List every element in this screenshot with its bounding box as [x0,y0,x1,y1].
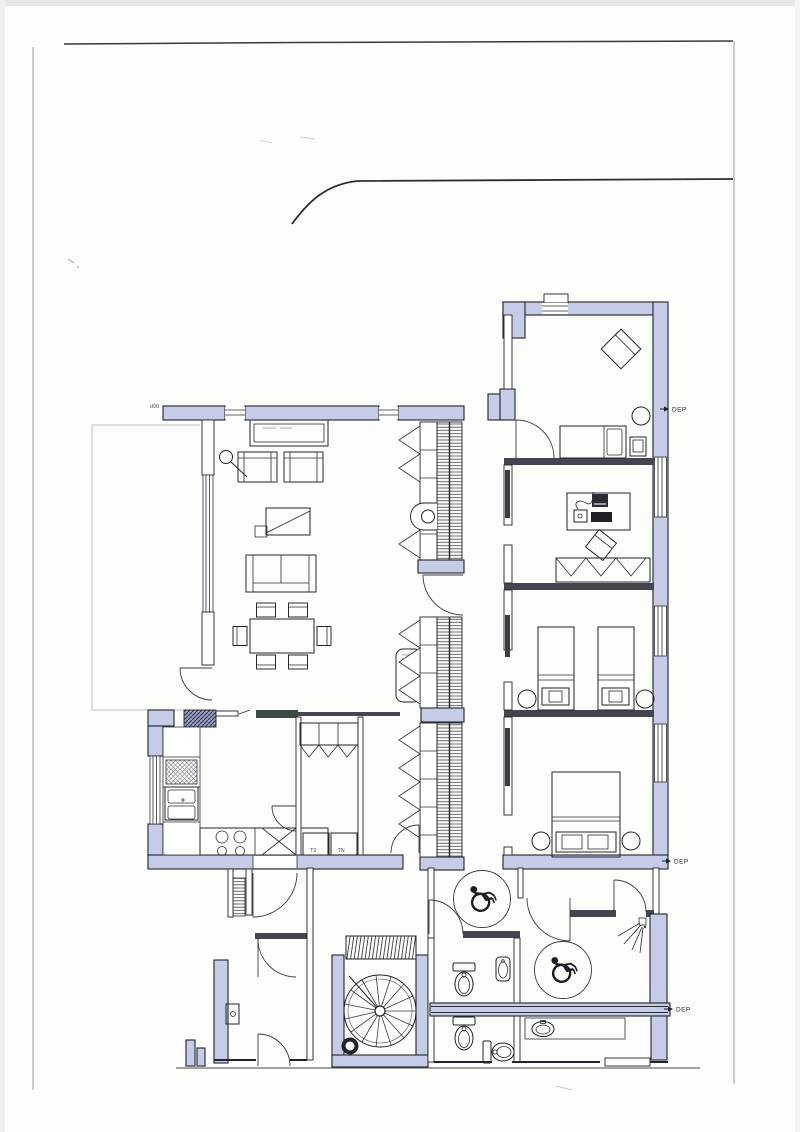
window-kitchen [150,756,160,824]
entry-step [544,294,568,303]
utility-unit-label-right: TN [338,848,345,854]
scan-artifacts [0,0,800,1132]
dep-label-top: DEP [672,407,687,414]
dep-label-bottom: DEP [676,1007,691,1014]
dep-label-middle: DEP [674,859,689,866]
window-east [655,457,667,782]
exterior-step [605,1058,650,1066]
window-west [203,475,213,612]
drainer [166,760,197,784]
door-width-note: d90 [150,404,159,410]
floor-plan-scan: TS TN [0,0,800,1132]
floor-plan-drawing: TS TN [0,0,800,1132]
washbasin-icon [411,503,438,530]
straight-stair-icon [346,936,416,959]
utility-unit-label-left: TS [310,848,317,854]
